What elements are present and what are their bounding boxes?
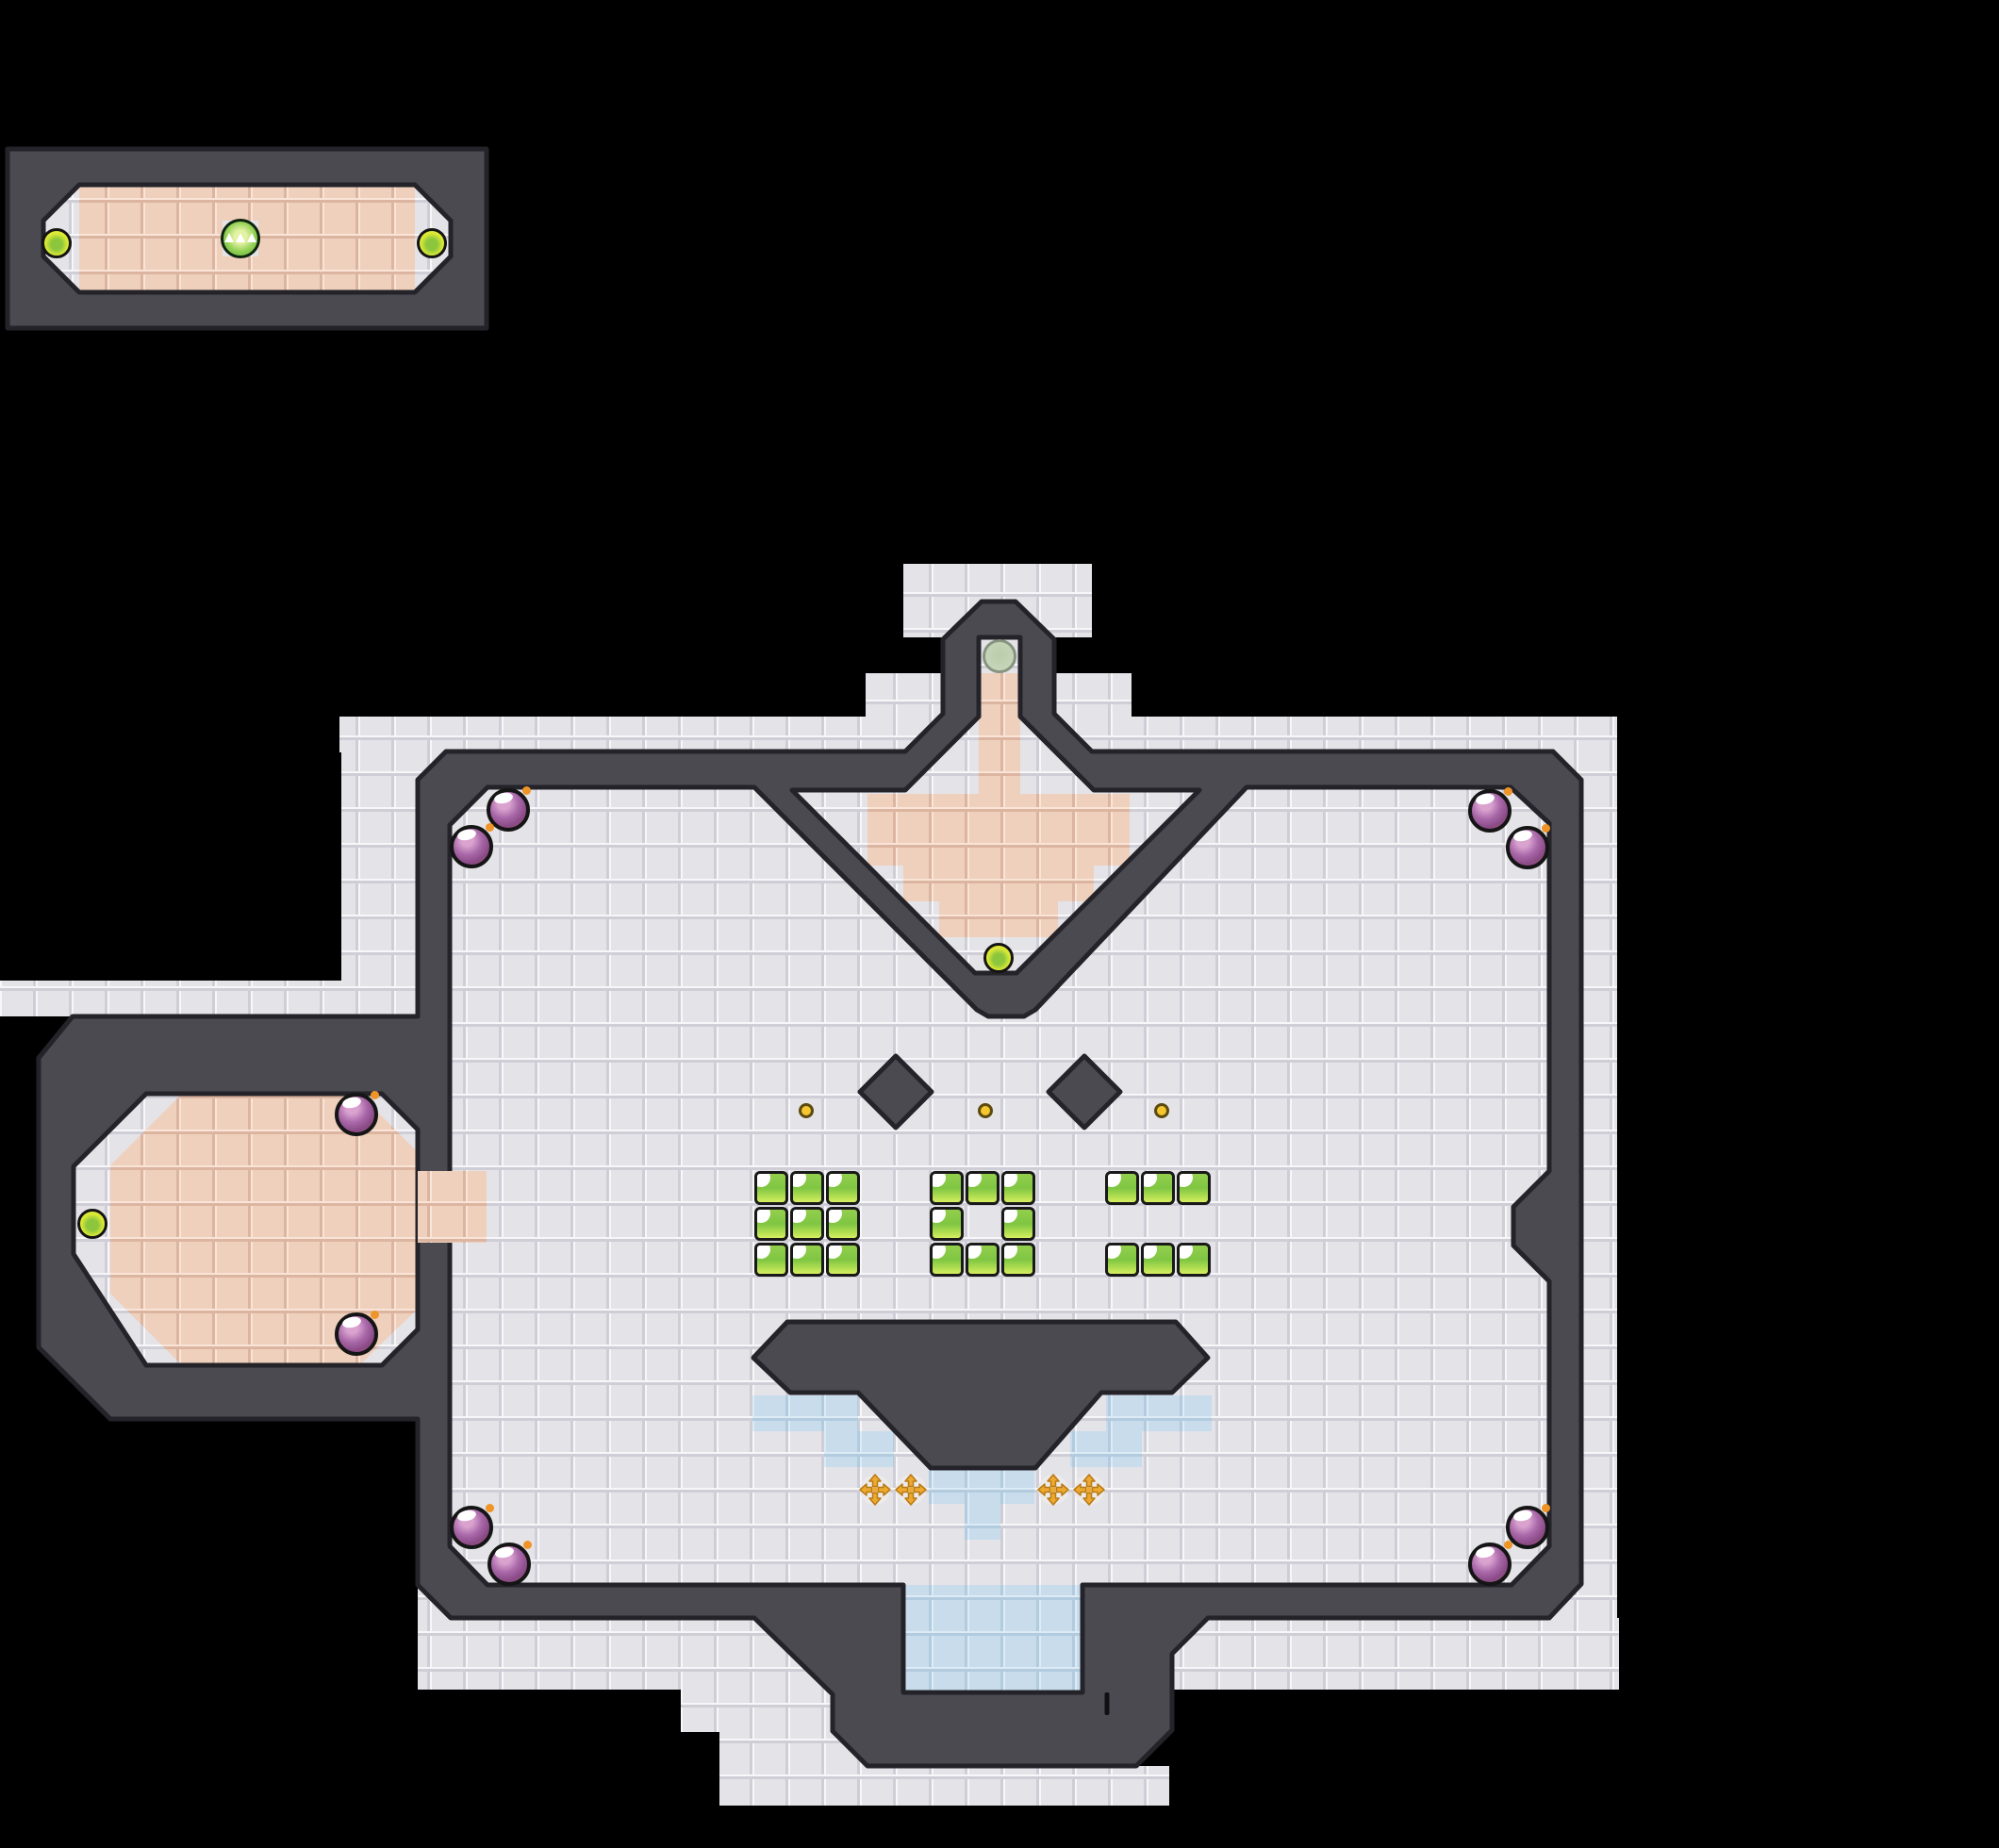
pressure-plate[interactable] [983, 639, 1016, 673]
orb-button[interactable] [77, 1209, 107, 1239]
gem-shine-icon [966, 1171, 982, 1187]
gem-block[interactable] [826, 1171, 860, 1205]
orb-button[interactable] [417, 228, 447, 258]
bomb-fuse-icon [371, 1091, 379, 1099]
gem-shine-icon [754, 1171, 770, 1187]
gem-block[interactable] [826, 1207, 860, 1241]
gem-shine-icon [1105, 1243, 1121, 1259]
bomb-shine-icon [456, 1509, 477, 1523]
bomb[interactable] [450, 1506, 493, 1549]
pickup-dot[interactable] [978, 1103, 993, 1118]
bomb-shine-icon [1512, 829, 1533, 843]
bomb-shine-icon [341, 1315, 362, 1329]
bomb-fuse-icon [1542, 1504, 1550, 1512]
bomb-shine-icon [1475, 1545, 1495, 1559]
bomb-shine-icon [1475, 792, 1495, 806]
gem-shine-icon [1001, 1207, 1017, 1223]
compass-pickup[interactable] [1034, 1471, 1072, 1509]
compass-pickup[interactable] [1070, 1471, 1108, 1509]
gem-block[interactable] [1001, 1207, 1035, 1241]
bomb[interactable] [450, 825, 493, 868]
gem-block[interactable] [790, 1243, 824, 1277]
bomb-shine-icon [494, 1545, 515, 1559]
bomb-fuse-icon [1542, 824, 1550, 833]
gem-shine-icon [790, 1207, 806, 1223]
pickup-dot[interactable] [1154, 1103, 1169, 1118]
spike-creature[interactable] [221, 219, 260, 258]
gem-block[interactable] [966, 1243, 999, 1277]
pillar-diamond-left [860, 1056, 932, 1128]
bomb[interactable] [335, 1312, 378, 1356]
bomb-shine-icon [341, 1096, 362, 1110]
bomb-fuse-icon [522, 786, 531, 795]
gem-shine-icon [1177, 1243, 1193, 1259]
bomb-shine-icon [456, 828, 477, 842]
bomb[interactable] [1468, 1543, 1512, 1586]
bomb-fuse-icon [486, 1504, 494, 1512]
bomb-fuse-icon [371, 1311, 379, 1319]
gem-block[interactable] [1105, 1171, 1139, 1205]
gem-block[interactable] [1177, 1171, 1211, 1205]
bomb[interactable] [1468, 789, 1512, 833]
gem-block[interactable] [1177, 1243, 1211, 1277]
center-trapezoid-wall [753, 1322, 1208, 1468]
pillar-diamond-right [1049, 1056, 1120, 1128]
bomb[interactable] [1506, 1506, 1549, 1549]
compass-pickup[interactable] [892, 1471, 930, 1509]
gem-shine-icon [754, 1243, 770, 1259]
gem-shine-icon [790, 1243, 806, 1259]
gem-shine-icon [790, 1171, 806, 1187]
gem-block[interactable] [1141, 1171, 1175, 1205]
gem-shine-icon [1141, 1243, 1157, 1259]
gem-shine-icon [826, 1243, 842, 1259]
gem-block[interactable] [1001, 1243, 1035, 1277]
orb-button[interactable] [983, 943, 1014, 973]
compass-pickup[interactable] [856, 1471, 894, 1509]
bomb-fuse-icon [1504, 787, 1512, 796]
gem-block[interactable] [754, 1207, 788, 1241]
gem-shine-icon [1141, 1171, 1157, 1187]
gem-block[interactable] [1001, 1171, 1035, 1205]
gem-shine-icon [930, 1171, 946, 1187]
bomb[interactable] [487, 1543, 531, 1586]
wall-layer [0, 0, 1999, 1848]
gem-block[interactable] [1105, 1243, 1139, 1277]
gem-block[interactable] [754, 1171, 788, 1205]
bomb-fuse-icon [1504, 1541, 1512, 1549]
gem-shine-icon [1001, 1171, 1017, 1187]
gem-shine-icon [930, 1243, 946, 1259]
gem-block[interactable] [930, 1243, 964, 1277]
gem-shine-icon [826, 1207, 842, 1223]
gem-shine-icon [1001, 1243, 1017, 1259]
bomb[interactable] [1506, 826, 1549, 869]
gem-block[interactable] [826, 1243, 860, 1277]
gem-block[interactable] [966, 1171, 999, 1205]
level-map [0, 0, 1999, 1848]
gem-shine-icon [1177, 1171, 1193, 1187]
wall-marker [1105, 1692, 1110, 1715]
gem-shine-icon [754, 1207, 770, 1223]
gem-block[interactable] [754, 1243, 788, 1277]
bomb-shine-icon [1512, 1509, 1533, 1523]
gem-shine-icon [966, 1243, 982, 1259]
bomb-shine-icon [493, 791, 514, 805]
gem-block[interactable] [1141, 1243, 1175, 1277]
gem-shine-icon [930, 1207, 946, 1223]
gem-shine-icon [1105, 1171, 1121, 1187]
orb-button[interactable] [41, 228, 72, 258]
gem-block[interactable] [790, 1171, 824, 1205]
gem-shine-icon [826, 1171, 842, 1187]
gem-block[interactable] [930, 1207, 964, 1241]
gem-block[interactable] [930, 1171, 964, 1205]
bomb[interactable] [335, 1093, 378, 1136]
bomb-fuse-icon [523, 1541, 532, 1549]
bomb-fuse-icon [486, 823, 494, 832]
pickup-dot[interactable] [799, 1103, 814, 1118]
gem-block[interactable] [790, 1207, 824, 1241]
